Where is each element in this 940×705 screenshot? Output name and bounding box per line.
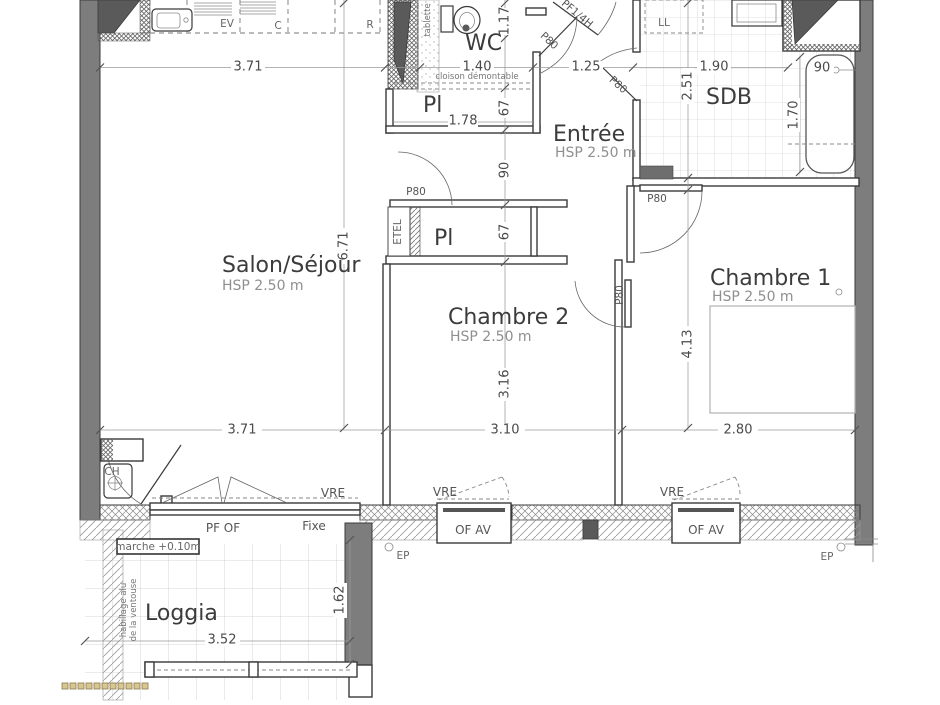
corner-duct-hatch xyxy=(783,0,792,51)
hsp-salon: HSP 2.50 m xyxy=(222,278,304,294)
hsp-entree: HSP 2.50 m xyxy=(555,145,637,161)
dim-178: 1.78 xyxy=(449,114,478,129)
hsp-chambre2: HSP 2.50 m xyxy=(450,329,532,345)
chambre2-door-label: P80 xyxy=(614,285,626,305)
sink-label: EV xyxy=(220,18,235,30)
dim-280: 2.80 xyxy=(724,423,753,438)
dim-162: 1.62 xyxy=(333,586,348,615)
room-label-sdb: SDB xyxy=(706,85,752,110)
washer-label: LL xyxy=(658,17,670,29)
dim-125: 1.25 xyxy=(572,60,601,75)
room-label-chambre2: Chambre 2 xyxy=(448,305,569,330)
chambre1-door-label: P80 xyxy=(647,193,667,205)
dim-251: 2.51 xyxy=(681,72,696,101)
room-label-chambre1: Chambre 1 xyxy=(710,266,831,291)
room-label-entree: Entrée xyxy=(553,122,625,147)
right-wall xyxy=(855,0,873,545)
insulation-strip xyxy=(98,33,150,41)
room-label-loggia: Loggia xyxy=(145,601,218,626)
dim-413: 4.13 xyxy=(681,330,696,359)
dim-371-top: 3.71 xyxy=(234,60,263,75)
wc-door-label: P80 xyxy=(538,30,561,52)
bed-outline xyxy=(710,306,855,413)
sdb-door-label: P80 xyxy=(607,74,630,96)
facade-column xyxy=(583,520,598,539)
toilet-tank xyxy=(441,6,453,32)
vre-label-3: VRE xyxy=(660,485,684,499)
dim-140: 1.40 xyxy=(463,60,492,75)
chambre1-door-leaf xyxy=(640,185,702,191)
top-left-wall-corner xyxy=(98,0,140,33)
ventouse-note-2: de la ventouse xyxy=(129,579,139,642)
fixe-label: Fixe xyxy=(302,519,325,533)
corner-duct-hatch xyxy=(783,44,860,51)
vre-label-1: VRE xyxy=(321,486,345,500)
step-note: marche +0.10m xyxy=(115,541,200,553)
pf-of-label: PF OF xyxy=(206,521,240,535)
dim-310: 3.10 xyxy=(491,423,520,438)
loggia-side-wall xyxy=(345,523,372,665)
insulation-strip xyxy=(140,0,150,33)
drainer-grille xyxy=(194,2,276,15)
cooker-label: C xyxy=(274,20,281,32)
hsp-chambre1: HSP 2.50 m xyxy=(712,289,794,305)
dim-352: 3.52 xyxy=(208,633,237,648)
floor-plan-page: Salon/Séjour HSP 2.50 m Entrée HSP 2.50 … xyxy=(0,0,940,705)
planter-squares xyxy=(62,683,148,689)
boiler-label: CH xyxy=(104,466,119,478)
kitchen-counter xyxy=(150,0,383,33)
rainwater-pipe-1 xyxy=(385,543,393,551)
dim-90-hall: 90 xyxy=(498,162,513,179)
room-label-pl-upper: Pl xyxy=(423,93,442,118)
ep-label-1: EP xyxy=(397,550,410,562)
dim-117: 1.17 xyxy=(498,7,513,36)
floor-plan: Salon/Séjour HSP 2.50 m Entrée HSP 2.50 … xyxy=(0,0,940,705)
sdb-vent-block xyxy=(640,166,673,179)
ch-door-leaf xyxy=(141,445,181,504)
etel-label: ETEL xyxy=(392,219,404,245)
dim-371-bottom: 3.71 xyxy=(228,423,257,438)
ep-label-2: EP xyxy=(821,551,834,563)
dim-67-a: 67 xyxy=(498,100,513,117)
dim-67-b: 67 xyxy=(498,224,513,241)
fridge-label: R xyxy=(366,19,373,31)
left-wall xyxy=(80,0,100,520)
tablette-label: tablette xyxy=(423,3,433,36)
room-label-pl-lower: Pl xyxy=(434,226,453,251)
dim-90-bath: 90 xyxy=(814,61,831,76)
entrance-door-label: PF1/4H xyxy=(559,0,595,31)
of-av-label-1: OF AV xyxy=(455,523,492,537)
rainwater-pipe-2 xyxy=(837,543,845,551)
switch-symbol xyxy=(836,289,842,295)
vre-label-2: VRE xyxy=(433,485,457,499)
of-av-label-2: OF AV xyxy=(688,523,725,537)
dim-190: 1.90 xyxy=(700,60,729,75)
dim-316: 3.16 xyxy=(498,370,513,399)
dim-170: 1.70 xyxy=(787,101,802,130)
pf-of-window xyxy=(150,503,360,510)
dim-671: 6.71 xyxy=(337,232,352,261)
salon-door-label: P80 xyxy=(406,186,426,198)
ventouse-note-1: habillage alu xyxy=(119,583,129,638)
